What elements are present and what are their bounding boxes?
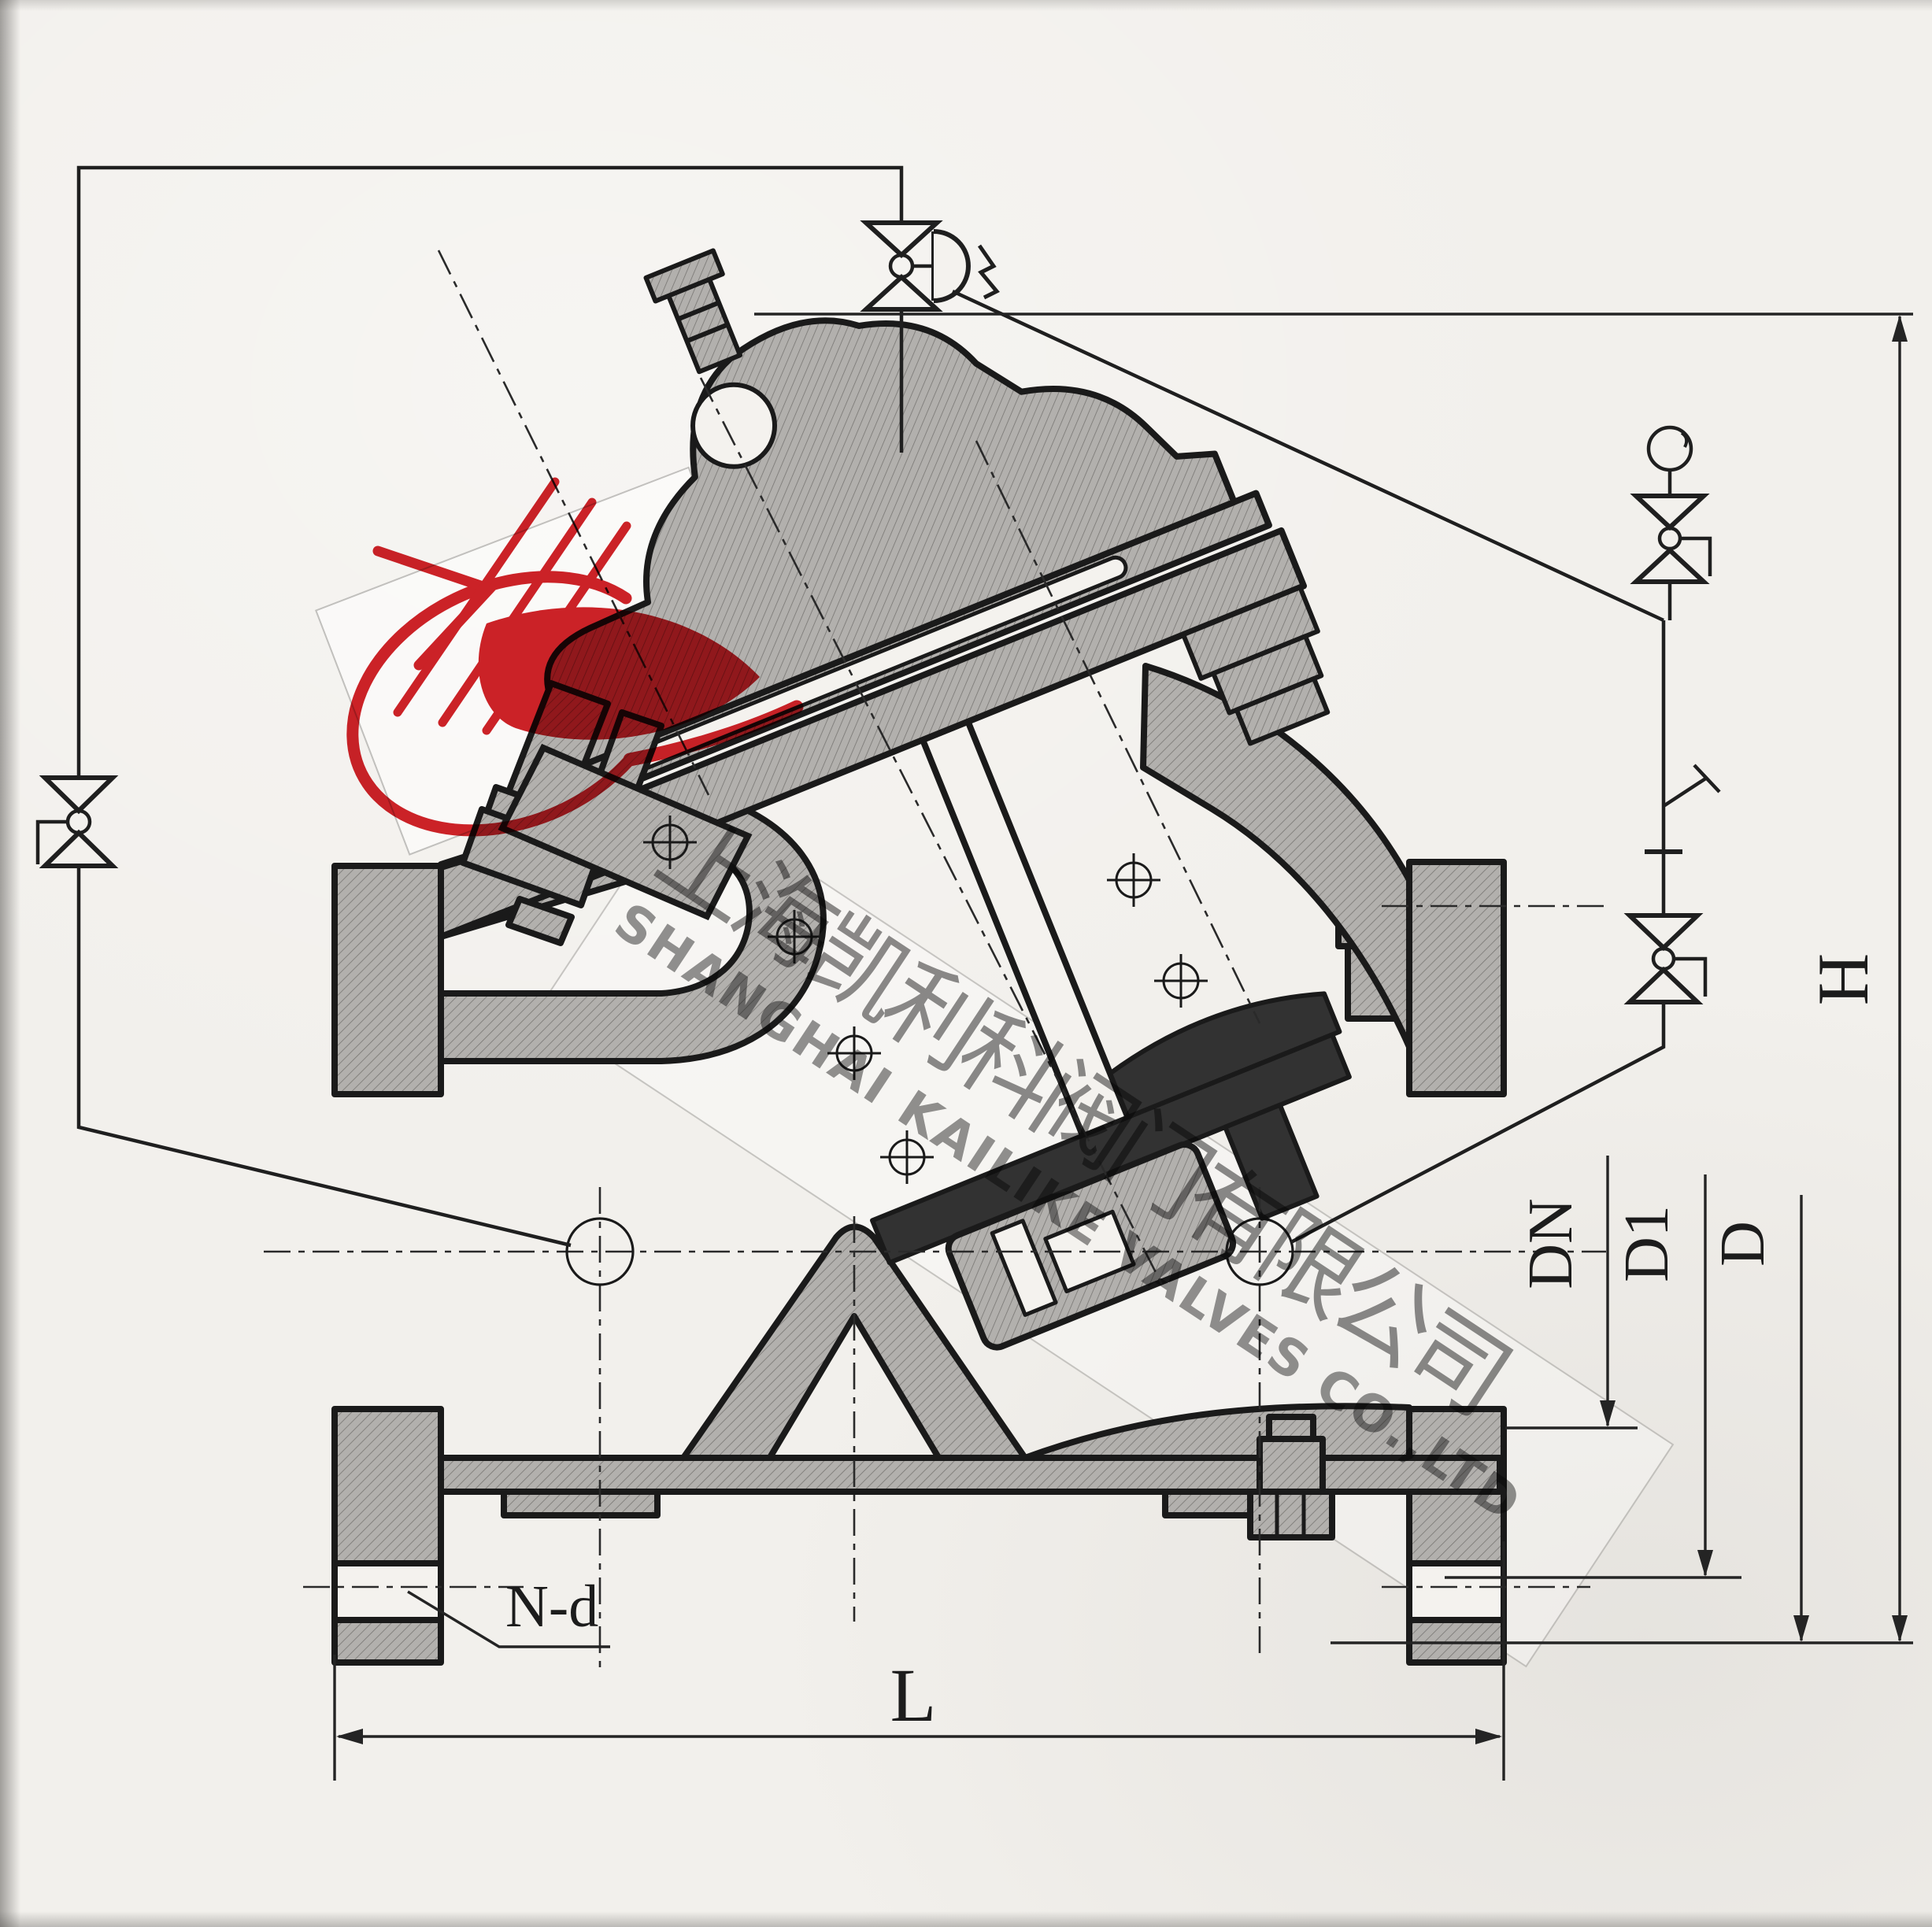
registered-mark: ® — [659, 686, 692, 730]
scanned-drawing-page: H D D1 DN L N-d ® 上海凯利科阀门有限公司 SHANGHA — [0, 0, 1932, 1927]
logo-swash-blob — [479, 607, 760, 739]
svg-text:®: ® — [660, 686, 691, 730]
company-logo: ® — [0, 0, 1932, 1927]
